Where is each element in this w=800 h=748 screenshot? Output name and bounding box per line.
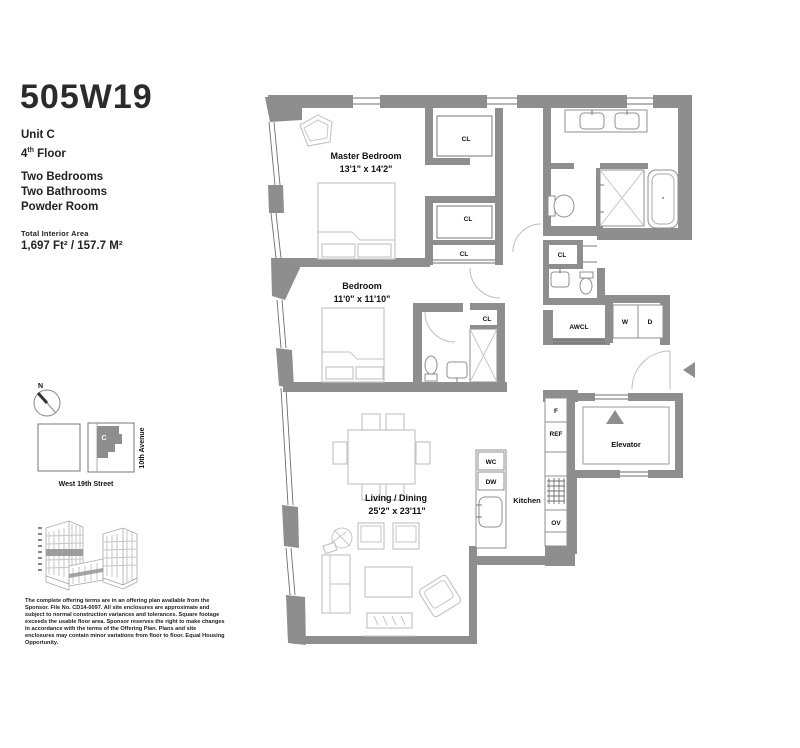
- area-label: Total Interior Area: [21, 229, 89, 238]
- armchairs: [358, 523, 419, 549]
- floorplan-page: 505W19 Unit C 4th Floor Two Bedrooms Two…: [0, 0, 800, 748]
- master-closets: CL CL CL: [437, 116, 492, 258]
- bed: [322, 308, 384, 382]
- washer-label: W: [622, 319, 629, 326]
- oven-label: OV: [551, 520, 561, 527]
- dryer-label: D: [648, 319, 653, 326]
- master-bedroom: Master Bedroom 13'1" x 14'2": [300, 115, 402, 259]
- closet-label: CL: [460, 251, 469, 258]
- building-illustration: [33, 516, 151, 598]
- svg-text:N: N: [38, 383, 43, 390]
- living-dining-name: Living / Dining: [365, 493, 427, 503]
- closet-label: CL: [462, 136, 471, 143]
- bedroom-name: Bedroom: [342, 281, 382, 291]
- bedroom-dims: 11'0" x 11'10": [334, 294, 391, 304]
- street-label: West 19th Street: [59, 481, 114, 488]
- master-bathroom: [548, 110, 678, 228]
- kitchen-label: Kitchen: [513, 496, 541, 505]
- page-title: 505W19: [20, 78, 153, 117]
- floor-plan: Master Bedroom 13'1" x 14'2" CL CL CL: [248, 85, 708, 655]
- laundry: AWCL W D: [569, 305, 663, 338]
- elevator-up-icon: [606, 410, 624, 424]
- living-dining-dims: 25'2" x 23'11": [368, 506, 425, 516]
- entry-arrow-icon: [683, 362, 695, 378]
- block-map: C: [38, 423, 134, 472]
- bedroom: Bedroom 11'0" x 11'10": [322, 281, 390, 382]
- feature-list: Two Bedrooms Two Bathrooms Powder Room: [21, 170, 107, 215]
- bed: [318, 183, 395, 259]
- legal-disclaimer: The complete offering terms are in an of…: [25, 598, 225, 647]
- feature-bedrooms: Two Bedrooms: [21, 170, 107, 185]
- powder-room: CL: [551, 252, 593, 294]
- coffee-table: [365, 567, 412, 597]
- master-bedroom-name: Master Bedroom: [330, 151, 401, 161]
- fridge-label: REF: [550, 431, 563, 438]
- avenue-label: 10th Avenue: [139, 427, 146, 468]
- dining-table: [333, 414, 430, 500]
- wine-cooler-label: WC: [486, 459, 497, 466]
- feature-bathrooms: Two Bathrooms: [21, 185, 107, 200]
- sofa: [322, 555, 350, 613]
- accent-chair: [418, 574, 462, 618]
- closet-label: CL: [558, 252, 567, 259]
- dishwasher-label: DW: [486, 479, 498, 486]
- living-dining: Living / Dining 25'2" x 23'11": [322, 414, 462, 636]
- closet-label: CL: [483, 316, 492, 323]
- kitchen: F REF OV WC DW Kitchen: [476, 398, 567, 548]
- elevator: Elevator: [583, 407, 669, 464]
- unit-location-shape: [97, 426, 122, 458]
- awcl-label: AWCL: [569, 324, 588, 331]
- floor-label: 4th Floor: [21, 143, 66, 162]
- compass: N: [34, 383, 60, 416]
- unit-marker: C: [101, 435, 106, 442]
- ottoman: [367, 613, 412, 628]
- floor-lamp: [323, 528, 352, 554]
- elevator-label: Elevator: [611, 440, 641, 449]
- unit-label: Unit C: [21, 128, 66, 143]
- unit-info: Unit C 4th Floor: [21, 128, 66, 162]
- closet-label: CL: [464, 216, 473, 223]
- master-bedroom-dims: 13'1" x 14'2": [340, 164, 393, 174]
- site-map: N C West 19th Street 10th Avenue: [20, 372, 160, 497]
- feature-powder: Powder Room: [21, 200, 107, 215]
- area-value: 1,697 Ft² / 157.7 M²: [21, 240, 123, 252]
- freezer-label: F: [554, 408, 558, 415]
